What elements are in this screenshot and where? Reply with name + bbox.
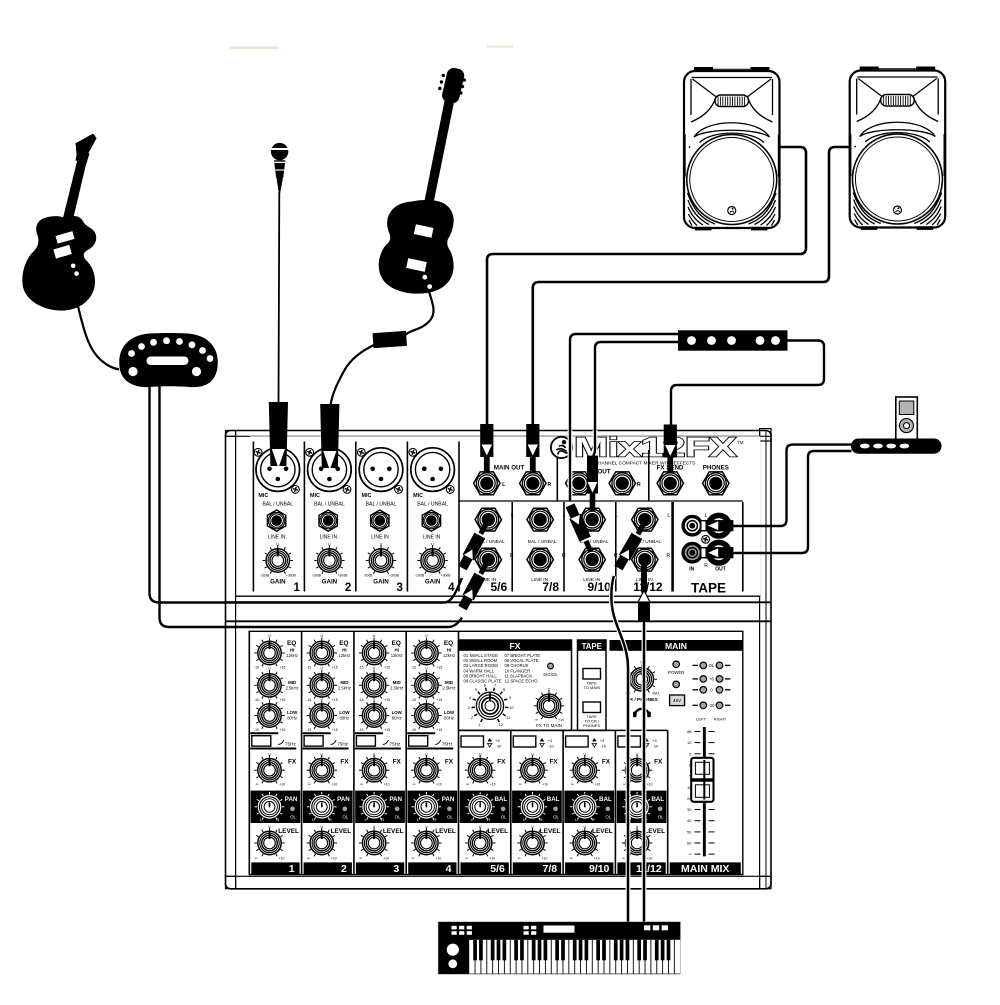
svg-text:∞: ∞ <box>256 782 259 787</box>
svg-text:-10: -10 <box>548 743 555 748</box>
svg-text:MID: MID <box>445 680 453 685</box>
svg-text:+30dB: +30dB <box>286 574 297 578</box>
svg-text:OUT: OUT <box>597 469 610 476</box>
svg-text:FX: FX <box>340 759 349 766</box>
svg-text:BAL / UNBAL: BAL / UNBAL <box>528 539 557 545</box>
svg-text:+15: +15 <box>280 666 286 670</box>
svg-text:+10: +10 <box>647 783 653 787</box>
svg-text:MIC: MIC <box>413 493 423 499</box>
svg-text:+30dB: +30dB <box>441 574 452 578</box>
svg-text:Mix12FX: Mix12FX <box>574 432 738 463</box>
svg-text:∞: ∞ <box>519 782 522 787</box>
svg-text:∞: ∞ <box>689 852 692 857</box>
svg-text:+10: +10 <box>436 856 442 860</box>
svg-text:11/12: 11/12 <box>633 580 663 594</box>
svg-text:∞: ∞ <box>308 782 311 787</box>
svg-text:U: U <box>380 542 383 546</box>
svg-text:U: U <box>583 753 586 757</box>
svg-text:LINE IN: LINE IN <box>320 534 338 540</box>
svg-text:-15: -15 <box>359 728 364 732</box>
svg-text:4: 4 <box>448 582 455 594</box>
svg-text:L: L <box>563 513 566 519</box>
svg-text:BAL / UNBAL: BAL / UNBAL <box>314 502 345 508</box>
svg-text:MAIN OUT: MAIN OUT <box>494 465 525 472</box>
svg-text:PHONES: PHONES <box>583 723 600 728</box>
svg-text:PAN: PAN <box>389 796 402 803</box>
svg-text:U: U <box>320 697 323 701</box>
svg-text:LINE IN: LINE IN <box>371 534 389 540</box>
svg-text:-20dB: -20dB <box>312 574 322 578</box>
svg-text:2.5kHz: 2.5kHz <box>286 685 299 690</box>
svg-text:LOW: LOW <box>287 710 298 715</box>
svg-text:-15: -15 <box>359 698 364 702</box>
svg-text:L: L <box>705 513 708 519</box>
svg-text:12kHz: 12kHz <box>338 653 350 658</box>
svg-text:U: U <box>431 542 434 546</box>
svg-text:-10: -10 <box>600 743 607 748</box>
svg-text:U: U <box>268 753 271 757</box>
svg-text:FX: FX <box>497 759 506 766</box>
svg-text:EQ: EQ <box>339 640 348 647</box>
svg-text:12kHz: 12kHz <box>443 653 455 658</box>
svg-text:+4: +4 <box>600 738 605 743</box>
svg-text:∞: ∞ <box>359 855 362 860</box>
svg-text:9/10: 9/10 <box>589 863 610 875</box>
svg-text:+4: +4 <box>495 738 500 743</box>
svg-text:U: U <box>479 753 482 757</box>
svg-text:U: U <box>373 634 376 638</box>
svg-text:1: 1 <box>289 863 295 875</box>
svg-text:+10: +10 <box>383 856 389 860</box>
svg-text:BAL: BAL <box>547 796 560 803</box>
svg-text:U: U <box>328 542 331 546</box>
svg-text:FX: FX <box>288 759 297 766</box>
svg-text:PAN: PAN <box>285 796 298 803</box>
svg-text:-15: -15 <box>411 666 416 670</box>
svg-text:U: U <box>373 667 376 671</box>
svg-text:BAL / UNBAL: BAL / UNBAL <box>262 502 293 508</box>
svg-text:MIC: MIC <box>362 493 372 499</box>
svg-text:FX: FX <box>445 759 454 766</box>
svg-text:FX: FX <box>393 759 402 766</box>
svg-text:MAIN MIX: MAIN MIX <box>681 863 729 875</box>
svg-text:80Hz: 80Hz <box>340 716 350 721</box>
svg-text:HI: HI <box>447 648 451 653</box>
svg-text:HI: HI <box>342 648 346 653</box>
svg-text:50: 50 <box>687 829 692 834</box>
svg-text:EQ: EQ <box>444 640 453 647</box>
svg-text:75Hz: 75Hz <box>442 741 453 746</box>
svg-text:PHONES: PHONES <box>703 465 729 472</box>
svg-text:R: R <box>614 553 618 559</box>
svg-text:OL: OL <box>553 814 559 819</box>
svg-text:U: U <box>583 825 586 829</box>
svg-text:7/8: 7/8 <box>542 580 559 594</box>
svg-text:HI: HI <box>394 648 398 653</box>
svg-text:LEVEL: LEVEL <box>540 828 561 835</box>
svg-text:LINE IN: LINE IN <box>268 534 286 540</box>
svg-text:R: R <box>381 817 384 822</box>
svg-text:R: R <box>329 817 332 822</box>
svg-text:BAL: BAL <box>599 796 612 803</box>
svg-text:-15: -15 <box>411 698 416 702</box>
svg-text:GAIN: GAIN <box>425 578 441 585</box>
svg-text:10: 10 <box>687 740 692 745</box>
svg-text:-15: -15 <box>254 666 259 670</box>
svg-text:12kHz: 12kHz <box>391 653 403 658</box>
svg-text:7/8: 7/8 <box>542 863 557 875</box>
svg-text:-15: -15 <box>306 698 311 702</box>
svg-text:-20dB: -20dB <box>260 574 270 578</box>
svg-text:+10: +10 <box>436 783 442 787</box>
svg-text:FX: FX <box>510 641 521 651</box>
svg-text:R: R <box>592 817 595 822</box>
svg-text:L: L <box>667 513 670 519</box>
svg-text:GAIN: GAIN <box>270 578 286 585</box>
svg-text:U: U <box>373 825 376 829</box>
svg-text:∞: ∞ <box>622 855 625 860</box>
svg-text:TAPE: TAPE <box>582 642 602 651</box>
svg-text:10: 10 <box>509 705 514 710</box>
svg-text:+30dB: +30dB <box>337 574 348 578</box>
svg-text:+10: +10 <box>542 783 548 787</box>
svg-text:SIG/OL: SIG/OL <box>543 672 558 677</box>
svg-text:75Hz: 75Hz <box>337 741 348 746</box>
svg-text:U: U <box>268 667 271 671</box>
svg-text:2: 2 <box>345 582 351 594</box>
svg-text:GAIN: GAIN <box>322 578 338 585</box>
svg-text:∞: ∞ <box>360 782 363 787</box>
svg-text:MAIN: MAIN <box>665 641 687 651</box>
svg-text:11/12: 11/12 <box>636 863 662 875</box>
svg-text:+10: +10 <box>542 856 548 860</box>
svg-text:LEVEL: LEVEL <box>331 828 352 835</box>
svg-text:U: U <box>425 667 428 671</box>
svg-text:∞: ∞ <box>570 855 573 860</box>
svg-text:MID: MID <box>288 680 296 685</box>
svg-text:OL: OL <box>290 814 296 819</box>
svg-text:60: 60 <box>687 841 692 846</box>
svg-text:75Hz: 75Hz <box>390 741 401 746</box>
svg-text:R: R <box>433 817 436 822</box>
svg-text:-15: -15 <box>306 666 311 670</box>
svg-text:+4: +4 <box>548 738 553 743</box>
svg-text:LOW: LOW <box>444 710 455 715</box>
svg-text:40: 40 <box>687 818 692 823</box>
svg-text:12kHz: 12kHz <box>286 653 298 658</box>
svg-text:U: U <box>320 753 323 757</box>
svg-text:30: 30 <box>687 807 692 812</box>
svg-text:EQ: EQ <box>392 640 401 647</box>
svg-text:-10: -10 <box>496 743 503 748</box>
svg-text:+10: +10 <box>594 856 600 860</box>
svg-text:-20: -20 <box>708 703 715 708</box>
svg-text:BAL: BAL <box>494 796 507 803</box>
svg-text:+15: +15 <box>437 728 443 732</box>
svg-text:PAN: PAN <box>337 796 350 803</box>
svg-text:+15: +15 <box>384 666 390 670</box>
svg-text:POWER: POWER <box>668 670 685 675</box>
svg-text:U: U <box>548 687 551 691</box>
svg-text:+10: +10 <box>331 856 337 860</box>
svg-text:-15: -15 <box>359 666 364 670</box>
svg-text:BAL: BAL <box>651 796 664 803</box>
svg-text:+15: +15 <box>332 728 338 732</box>
svg-text:OUT: OUT <box>715 566 726 572</box>
svg-text:5/6: 5/6 <box>491 580 508 594</box>
svg-text:+15: +15 <box>437 698 443 702</box>
svg-text:+15: +15 <box>280 728 286 732</box>
svg-text:U: U <box>320 667 323 671</box>
svg-text:+10: +10 <box>279 856 285 860</box>
svg-text:HI: HI <box>290 648 294 653</box>
svg-text:LEVEL: LEVEL <box>278 828 299 835</box>
svg-text:+15: +15 <box>384 728 390 732</box>
svg-text:2: 2 <box>341 863 347 875</box>
svg-text:48V: 48V <box>673 698 682 703</box>
svg-text:+10: +10 <box>279 783 285 787</box>
svg-text:R: R <box>510 553 514 559</box>
svg-text:∞: ∞ <box>307 855 310 860</box>
svg-text:U: U <box>268 634 271 638</box>
svg-text:MIC: MIC <box>258 493 268 499</box>
svg-text:TO MAIN: TO MAIN <box>583 685 600 690</box>
svg-text:U: U <box>268 697 271 701</box>
svg-text:U: U <box>636 825 639 829</box>
svg-text:U: U <box>425 753 428 757</box>
svg-text:5/6: 5/6 <box>490 863 505 875</box>
svg-text:U: U <box>531 753 534 757</box>
svg-text:75Hz: 75Hz <box>285 741 296 746</box>
svg-text:MID: MID <box>340 680 348 685</box>
svg-text:LEVEL: LEVEL <box>435 828 456 835</box>
svg-text:R: R <box>562 553 566 559</box>
svg-text:L: L <box>511 513 514 519</box>
svg-text:MIC: MIC <box>310 493 320 499</box>
svg-text:+10: +10 <box>594 783 600 787</box>
svg-text:R: R <box>277 817 280 822</box>
svg-text:+10: +10 <box>489 856 495 860</box>
svg-text:OL: OL <box>658 814 664 819</box>
svg-text:R: R <box>666 553 670 559</box>
svg-text:3: 3 <box>393 863 399 875</box>
svg-text:+10: +10 <box>384 783 390 787</box>
svg-text:-20dB: -20dB <box>415 574 425 578</box>
svg-text:U: U <box>320 634 323 638</box>
svg-text:BAL / UNBAL: BAL / UNBAL <box>417 502 448 508</box>
svg-text:-20dB: -20dB <box>363 574 373 578</box>
svg-text:FX: FX <box>654 759 663 766</box>
svg-text:4: 4 <box>446 863 452 875</box>
svg-text:80Hz: 80Hz <box>444 716 454 721</box>
svg-text:PAN: PAN <box>442 796 455 803</box>
svg-text:FX: FX <box>602 759 611 766</box>
svg-text:2.5kHz: 2.5kHz <box>338 685 351 690</box>
svg-text:FX: FX <box>550 759 559 766</box>
svg-text:∞: ∞ <box>412 782 415 787</box>
svg-text:+10: +10 <box>490 783 496 787</box>
svg-text:OL: OL <box>447 814 453 819</box>
svg-text:-15: -15 <box>254 698 259 702</box>
svg-text:∞: ∞ <box>535 717 538 722</box>
svg-text:80Hz: 80Hz <box>392 716 402 721</box>
svg-text:+30dB: +30dB <box>389 574 400 578</box>
svg-text:+15: +15 <box>332 666 338 670</box>
svg-text:-15: -15 <box>411 728 416 732</box>
svg-text:R: R <box>637 482 641 488</box>
svg-text:∞: ∞ <box>518 855 521 860</box>
svg-text:+4: +4 <box>652 738 657 743</box>
svg-text:U: U <box>479 825 482 829</box>
svg-text:-15: -15 <box>306 728 311 732</box>
svg-text:LEVEL: LEVEL <box>487 828 508 835</box>
svg-text:∞: ∞ <box>411 855 414 860</box>
svg-text:LOW: LOW <box>392 710 403 715</box>
svg-text:LOW: LOW <box>339 710 350 715</box>
svg-text:GAIN: GAIN <box>373 578 389 585</box>
svg-text:2.5kHz: 2.5kHz <box>442 685 455 690</box>
svg-text:80Hz: 80Hz <box>287 716 297 721</box>
svg-text:MAX: MAX <box>653 692 661 696</box>
svg-text:-10: -10 <box>653 743 660 748</box>
svg-text:1: 1 <box>293 582 300 594</box>
svg-text:TM: TM <box>737 440 744 445</box>
svg-text:U: U <box>268 825 271 829</box>
svg-text:U: U <box>425 825 428 829</box>
svg-text:LEVEL: LEVEL <box>592 828 613 835</box>
svg-text:∞: ∞ <box>466 782 469 787</box>
svg-text:+10: +10 <box>646 856 652 860</box>
svg-text:-15: -15 <box>254 728 259 732</box>
svg-text:U: U <box>373 697 376 701</box>
svg-text:LEVEL: LEVEL <box>644 828 665 835</box>
svg-text:LEVEL: LEVEL <box>383 828 404 835</box>
svg-text:+15: +15 <box>384 698 390 702</box>
svg-text:dB: dB <box>687 729 692 734</box>
svg-text:OL: OL <box>395 814 401 819</box>
svg-text:LINE IN: LINE IN <box>423 534 441 540</box>
svg-text:RIGHT: RIGHT <box>714 717 727 722</box>
svg-text:+15: +15 <box>332 698 338 702</box>
svg-text:U: U <box>320 825 323 829</box>
svg-text:∞: ∞ <box>465 855 468 860</box>
svg-text:FX TO MAIN: FX TO MAIN <box>536 723 562 728</box>
svg-text:R: R <box>704 563 708 569</box>
svg-text:2.5kHz: 2.5kHz <box>390 685 403 690</box>
svg-text:U: U <box>425 634 428 638</box>
svg-text:EQ: EQ <box>287 640 296 647</box>
svg-text:U: U <box>373 753 376 757</box>
svg-text:U: U <box>636 753 639 757</box>
svg-text:MID: MID <box>393 680 401 685</box>
svg-text:∞: ∞ <box>571 782 574 787</box>
svg-text:R: R <box>487 817 490 822</box>
svg-text:L: L <box>615 513 618 519</box>
svg-text:U: U <box>276 542 279 546</box>
svg-text:12 SPACE ECHO: 12 SPACE ECHO <box>505 679 539 684</box>
svg-text:R: R <box>547 482 551 488</box>
svg-text:+15: +15 <box>437 666 443 670</box>
svg-text:LEFT: LEFT <box>696 717 706 722</box>
svg-text:9/10: 9/10 <box>587 580 611 594</box>
svg-text:U: U <box>531 825 534 829</box>
svg-text:R: R <box>540 817 543 822</box>
svg-text:+6: +6 <box>709 677 714 682</box>
svg-text:OL: OL <box>342 814 348 819</box>
svg-text:U: U <box>425 697 428 701</box>
svg-text:3: 3 <box>396 582 402 594</box>
svg-text:OL: OL <box>709 663 715 668</box>
svg-text:∞: ∞ <box>255 855 258 860</box>
svg-text:12: 12 <box>499 722 504 727</box>
svg-text:TAPE: TAPE <box>691 580 726 595</box>
svg-text:OL: OL <box>605 814 611 819</box>
svg-text:IN: IN <box>689 566 694 572</box>
svg-text:BAL / UNBAL: BAL / UNBAL <box>366 502 397 508</box>
svg-text:OL: OL <box>501 814 507 819</box>
svg-text:+10: +10 <box>331 783 337 787</box>
svg-text:+15: +15 <box>280 698 286 702</box>
svg-text:+10: +10 <box>558 718 564 722</box>
